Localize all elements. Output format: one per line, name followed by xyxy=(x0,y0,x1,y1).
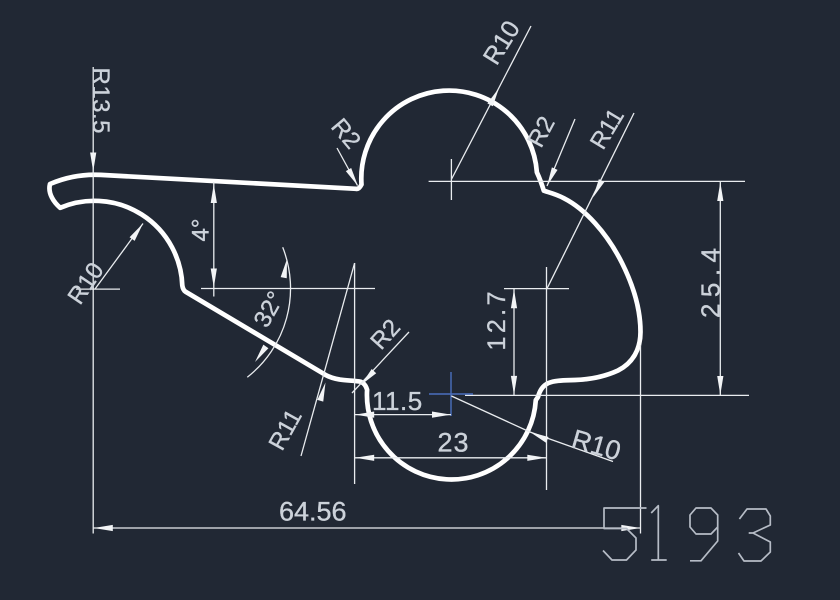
svg-text:23: 23 xyxy=(438,428,470,458)
svg-text:R13.5: R13.5 xyxy=(87,68,114,134)
svg-text:25.4: 25.4 xyxy=(696,248,726,318)
svg-text:64.56: 64.56 xyxy=(279,497,347,527)
svg-text:12.7: 12.7 xyxy=(483,292,511,351)
svg-text:4°: 4° xyxy=(188,219,215,242)
svg-text:11.5: 11.5 xyxy=(372,386,423,416)
